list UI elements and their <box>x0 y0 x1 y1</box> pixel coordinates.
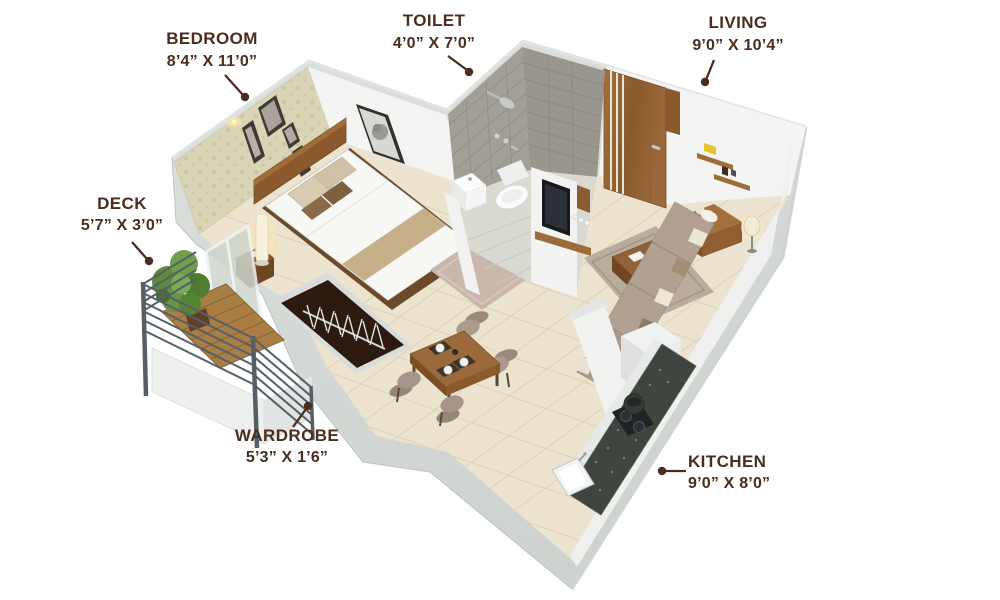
tv-screen <box>545 184 567 231</box>
plate <box>436 344 444 352</box>
toilet <box>444 47 606 297</box>
room-name: LIVING <box>708 13 767 32</box>
room-size: 9’0” X 10’4” <box>692 37 783 54</box>
railing-post <box>143 282 146 396</box>
leader-dot <box>145 257 153 265</box>
label-toilet: TOILET 4’0” X 7’0” <box>393 11 475 76</box>
room-name: DECK <box>97 194 147 213</box>
leader-line <box>225 75 243 95</box>
label-living: LIVING 9’0” X 10’4” <box>692 13 783 86</box>
leader-dot <box>241 93 249 101</box>
room-name: KITCHEN <box>688 452 766 471</box>
room-name: TOILET <box>403 11 466 30</box>
leader-dot <box>304 402 312 410</box>
leader-dot <box>658 467 666 475</box>
floor-plan-canvas: BEDROOM 8’4” X 11’0” TOILET 4’0” X 7’0” … <box>0 0 1000 600</box>
room-name: WARDROBE <box>235 426 339 445</box>
room-size: 4’0” X 7’0” <box>393 35 475 52</box>
room-size: 9’0” X 8’0” <box>688 475 770 492</box>
plate <box>444 366 452 374</box>
label-deck: DECK 5’7” X 3’0” <box>81 194 163 265</box>
leader-line <box>706 60 714 80</box>
room-name: BEDROOM <box>166 29 258 48</box>
centerpiece <box>452 349 458 355</box>
wall-sconce <box>232 120 237 125</box>
leader-dot <box>465 68 473 76</box>
door-frame <box>666 88 680 135</box>
room-size: 5’7” X 3’0” <box>81 217 163 234</box>
plate <box>460 358 468 366</box>
leader-line <box>448 56 467 70</box>
room-size: 8’4” X 11’0” <box>167 53 257 70</box>
leader-dot <box>701 78 709 86</box>
floor-plan-page: BEDROOM 8’4” X 11’0” TOILET 4’0” X 7’0” … <box>0 0 1000 600</box>
room-size: 5’3” X 1’6” <box>246 449 328 466</box>
label-kitchen: KITCHEN 9’0” X 8’0” <box>658 452 770 492</box>
leader-line <box>132 242 147 259</box>
label-bedroom: BEDROOM 8’4” X 11’0” <box>166 29 258 101</box>
